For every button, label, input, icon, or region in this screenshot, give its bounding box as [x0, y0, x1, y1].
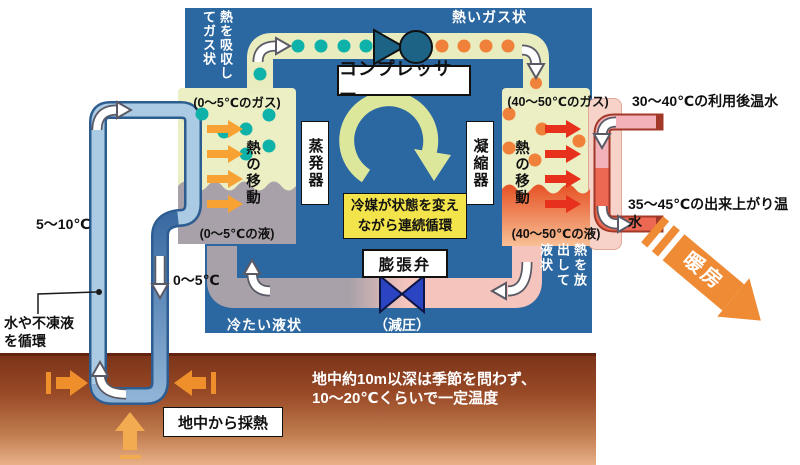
- ground-note: 地中約10m以深は季節を問わず、 10～20℃くらいで一定温度: [312, 370, 536, 408]
- water-return-label: 30～40℃の利用後温水: [632, 93, 778, 111]
- evap-gas-state-label: (0～5℃のガス): [180, 96, 294, 112]
- ground-loop-outline: [98, 110, 193, 396]
- fluid-note-line2: を循環: [4, 333, 74, 351]
- ground-note-line2: 10～20℃くらいで一定温度: [312, 389, 536, 408]
- hot-gas-label: 熱いガス状: [452, 9, 527, 27]
- loop-return-temp: 0～5℃: [173, 272, 220, 290]
- heat-transfer-left-label: 熱の移動: [243, 140, 261, 220]
- evaporator-label-box: 蒸発器: [301, 121, 329, 205]
- expansion-valve-label: 膨張弁: [362, 249, 448, 278]
- cycle-arc-head: [414, 149, 451, 181]
- refrigerant-note-line2: ながら連続循環: [358, 216, 453, 236]
- condenser-label: 凝縮器: [473, 138, 488, 189]
- fluid-note: 水や不凍液 を循環: [4, 315, 74, 350]
- cold-liquid-label: 冷たい液状: [227, 317, 302, 335]
- heat-collect-label: 地中から採熱: [163, 407, 283, 437]
- water-supply-label: 35～45℃の出来上がり温水: [628, 196, 800, 231]
- absorb-heat-label: 熱を吸収してガス状: [196, 10, 234, 82]
- refrigerant-note: 冷媒が状態を変え ながら連続循環: [343, 193, 467, 239]
- heat-transfer-right-label: 熱の移動: [512, 140, 530, 220]
- compressor-label: コンプレッサー: [337, 65, 471, 96]
- evaporator-label: 蒸発器: [308, 138, 323, 189]
- ground-loop-warm-pipe: [98, 110, 193, 386]
- cycle-arc: [347, 99, 431, 176]
- release-heat-label: 熱を放出して液状: [550, 243, 588, 301]
- refrigerant-note-line1: 冷媒が状態を変え: [351, 196, 459, 216]
- ground-heat-up-arrow: [115, 412, 145, 459]
- condenser-label-box: 凝縮器: [466, 121, 494, 205]
- ground-loop-cold-pipe: [98, 218, 178, 396]
- decompression-label: （減圧）: [374, 317, 430, 335]
- evap-liquid-state-label: (0～5℃の液): [184, 227, 290, 243]
- cond-gas-state-label: (40～50℃のガス): [496, 95, 620, 111]
- cond-liquid-state-label: (40～50℃の液): [498, 227, 614, 243]
- ground-note-line1: 地中約10m以深は季節を問わず、: [312, 370, 536, 389]
- heat-pump-diagram: 熱を吸収してガス状 熱いガス状 コンプレッサー (0～5℃のガス) (0～5℃の…: [0, 0, 800, 465]
- loop-supply-temp: 5～10℃: [36, 216, 90, 234]
- fluid-note-line1: 水や不凍液: [4, 315, 74, 333]
